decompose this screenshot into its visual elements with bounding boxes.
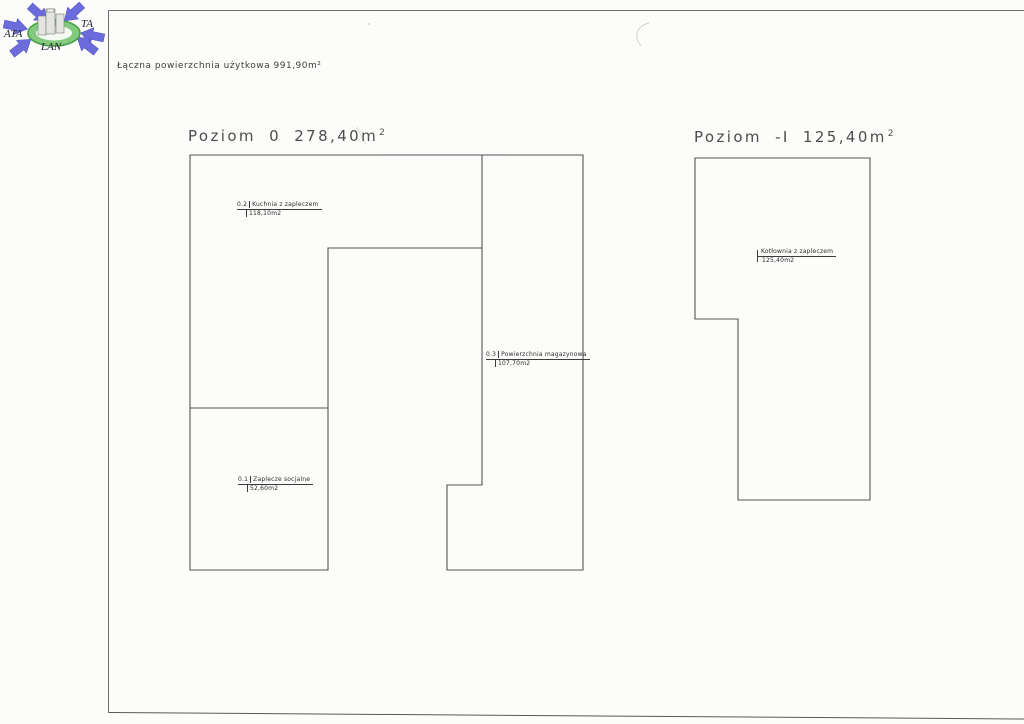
room-number: 0.2 xyxy=(237,201,250,208)
room-label-kotlownia: Kotłownia z zapleczem 125,40m2 xyxy=(757,248,836,264)
room-area: 107,70m2 xyxy=(495,360,530,367)
room-name: Zaplecze socjalne xyxy=(253,476,310,483)
room-label-magazyn: 0.3Powierzchnia magazynowa 107,70m2 xyxy=(486,351,590,367)
room-name: Kuchnia z zapleczem xyxy=(252,201,318,208)
floor-plan-poziom-minus-1-outline xyxy=(695,158,870,500)
room-number: 0.3 xyxy=(486,351,499,358)
room-name: Kotłownia z zapleczem xyxy=(761,248,833,255)
room-label-kuchnia: 0.2Kuchnia z zapleczem 118,10m2 xyxy=(237,201,322,217)
agency-logo: ATA TA LAN xyxy=(2,2,106,58)
plan-title-poziom-0-text: Poziom 0 278,40m xyxy=(188,127,378,145)
scan-artifact-arc xyxy=(637,23,649,46)
room-area: 125,40m2 xyxy=(762,257,794,264)
plan-title-poziom-minus-1: Poziom -I 125,40m2 xyxy=(694,128,894,146)
scan-artifact-speck xyxy=(368,23,370,25)
label-leader-tick xyxy=(757,250,758,262)
frame-bottom-line xyxy=(109,713,1024,720)
room-area: 118,10m2 xyxy=(246,210,281,217)
logo-text-ata: ATA xyxy=(3,28,23,40)
plan-title-poziom-0-sup: 2 xyxy=(379,128,385,138)
room-name: Powierzchnia magazynowa xyxy=(501,351,586,358)
room-label-zaplecze-socjalne: 0.1Zaplecze socjalne 52,60m2 xyxy=(238,476,313,492)
total-usable-area-text: Łączna powierzchnia użytkowa 991,90m² xyxy=(117,61,321,71)
logo-text-ta: TA xyxy=(81,18,93,30)
plan-title-poziom-minus-1-sup: 2 xyxy=(888,129,894,139)
scanned-floor-plan-page: ATA TA LAN Łączna powierzchnia użytkowa … xyxy=(0,0,1024,724)
scan-artifacts xyxy=(357,23,649,144)
plan-title-poziom-minus-1-text: Poziom -I 125,40m xyxy=(694,128,887,146)
room-number: 0.1 xyxy=(238,476,251,483)
room-area: 52,60m2 xyxy=(247,485,278,492)
plan-title-poziom-0: Poziom 0 278,40m2 xyxy=(188,127,385,145)
logo-text-lan: LAN xyxy=(40,41,62,53)
